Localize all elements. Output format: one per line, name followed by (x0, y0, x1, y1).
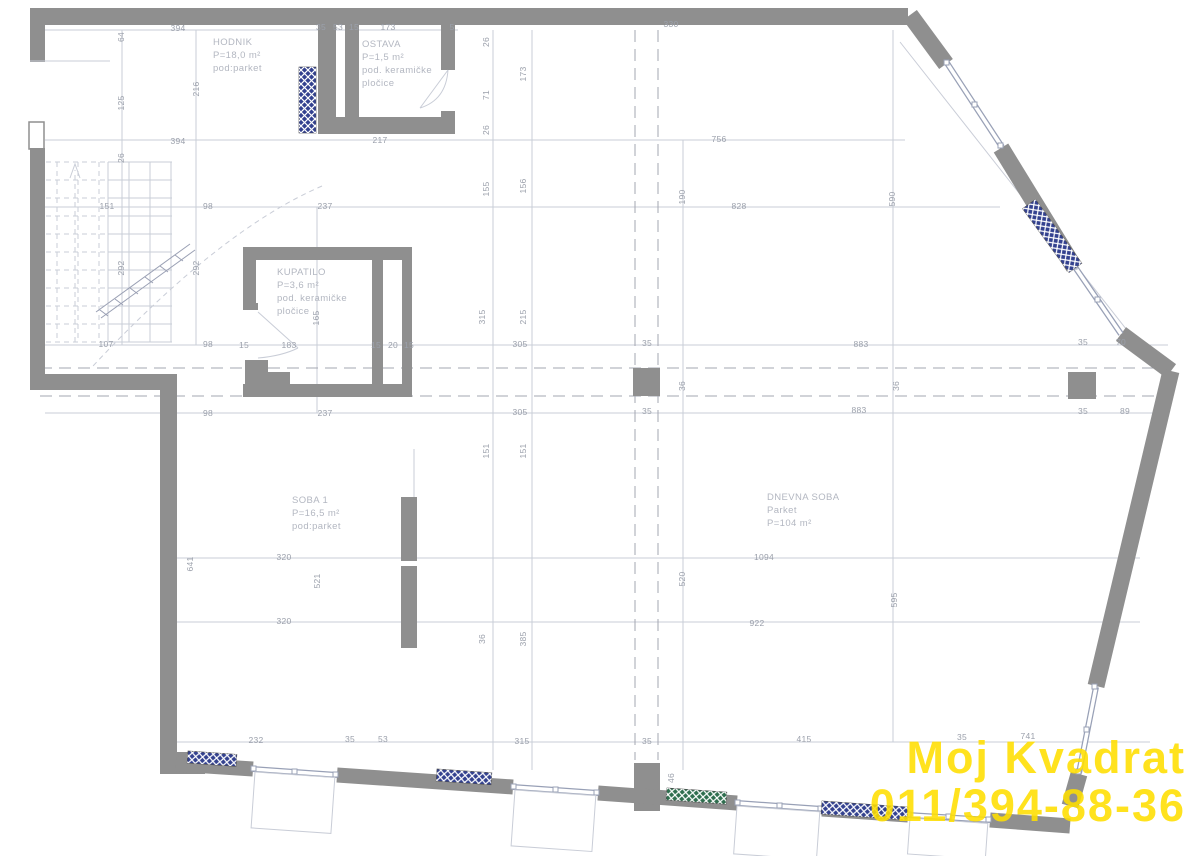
dimension-label: 320 (276, 616, 291, 626)
dimension-label: 35 (1078, 406, 1088, 416)
dimension-label: 415 (796, 734, 811, 744)
dimension-label: 15 (404, 340, 414, 350)
dimension-label: 183 (281, 340, 296, 350)
dimension-label: 883 (851, 405, 866, 415)
dimension-label: 330 (663, 19, 678, 29)
dimension-label: 305 (512, 407, 527, 417)
dimension-label: 922 (749, 618, 764, 628)
top-wall (30, 8, 908, 25)
dimension-label: 216 (191, 81, 201, 96)
dimension-label: 520 (677, 571, 687, 586)
dimension-label: 595 (889, 592, 899, 607)
dimension-label: 89 (1120, 406, 1130, 416)
window-diagonal-2 (1072, 264, 1121, 334)
dimension-label: 15 (239, 340, 249, 350)
center-column (633, 368, 660, 396)
dimension-label: 151 (518, 443, 528, 458)
dimension-label: 173 (518, 66, 528, 81)
dimension-label: 215 (518, 309, 528, 324)
dimension-label: 756 (711, 134, 726, 144)
dimension-label: 26 (481, 125, 491, 135)
watermark-phone: 011/394-88-36 (870, 782, 1186, 830)
dimension-label: 35 (345, 734, 355, 744)
dimension-label: 35 (642, 406, 652, 416)
dimension-label: 237 (317, 408, 332, 418)
dimension-label: 641 (185, 556, 195, 571)
dimension-label: 15 (371, 340, 381, 350)
entry-door-jamb (29, 122, 44, 149)
dimension-label: 305 (512, 339, 527, 349)
dimension-label: 828 (731, 201, 746, 211)
dimension-label: 35 (1078, 337, 1088, 347)
floor-plan: 3943553151735330394217756151982378281079… (0, 0, 1200, 856)
dimension-label: 315 (477, 309, 487, 324)
dimension-label: 173 (380, 22, 395, 32)
soba1-partition-wall (401, 449, 417, 648)
dimension-label: 292 (191, 260, 201, 275)
window-bottom-2 (511, 784, 599, 795)
dimension-label: 217 (372, 135, 387, 145)
hatch-window-diagonal (1023, 199, 1082, 272)
staircase (46, 162, 195, 342)
left-wall-lower (160, 390, 177, 758)
left-wall-mid (30, 148, 45, 376)
window-bottom-1 (251, 766, 338, 777)
left-step-wall (30, 374, 177, 390)
left-wall-upper (30, 8, 45, 62)
dimension-label: 20 (388, 340, 398, 350)
dimension-label: 1094 (754, 552, 774, 562)
dimension-label: 53 (333, 22, 343, 32)
dimension-label: 883 (853, 339, 868, 349)
room-label-ostava: OSTAVA P=1,5 m² pod. keramičke pločice (362, 38, 432, 90)
right-column (1068, 372, 1096, 399)
windows-layer (251, 60, 1121, 822)
dimension-label: 237 (317, 201, 332, 211)
dimension-label: 71 (481, 90, 491, 100)
dimension-label: 26 (481, 37, 491, 47)
dimension-label: 35 (316, 22, 326, 32)
hatched-panels (187, 67, 1082, 820)
room-label-hodnik: HODNIK P=18,0 m² pod:parket (213, 36, 262, 75)
dimension-label: 36 (891, 381, 901, 391)
dimension-label: 156 (518, 178, 528, 193)
dimension-label: 46 (666, 773, 676, 783)
dimension-label: 385 (518, 631, 528, 646)
dimension-label: 107 (98, 339, 113, 349)
dimension-label: 232 (248, 735, 263, 745)
dimension-label: 15 (349, 22, 359, 32)
walls-layer (29, 8, 1171, 826)
dimension-label: 70 (1116, 337, 1126, 347)
dimension-label: 98 (203, 201, 213, 211)
dimension-label: 155 (481, 181, 491, 196)
dimension-label: 394 (170, 23, 185, 33)
dimension-label: 320 (276, 552, 291, 562)
dimension-label: 98 (203, 339, 213, 349)
hatch-window-vertical (299, 67, 316, 133)
dimension-label: 315 (514, 736, 529, 746)
kupatilo-door-arc (258, 312, 298, 358)
dimension-label: 53 (378, 734, 388, 744)
dimension-label: 36 (677, 381, 687, 391)
dimension-label: 98 (203, 408, 213, 418)
dimension-label: 35 (642, 736, 652, 746)
watermark-brand: Moj Kvadrat (906, 734, 1186, 782)
room-label-kupatilo: KUPATILO P=3,6 m² pod. keramičke pločice (277, 266, 347, 318)
dimension-label: 292 (116, 260, 126, 275)
dimension-label: 590 (887, 191, 897, 206)
dimension-label: 394 (170, 136, 185, 146)
dimension-label: 151 (99, 201, 114, 211)
dimension-label: 521 (312, 573, 322, 588)
dimension-label: 5 (449, 22, 454, 32)
floor-plan-drawing (0, 0, 1200, 856)
dimension-label: 151 (481, 443, 491, 458)
room-label-soba-1: SOBA 1 P=16,5 m² pod:parket (292, 494, 341, 533)
dimension-label: 35 (642, 338, 652, 348)
dimension-label: 64 (116, 32, 126, 42)
room-label-dnevna-soba: DNEVNA SOBA Parket P=104 m² (767, 491, 840, 530)
door-swings (93, 70, 448, 366)
dimension-label: 26 (116, 153, 126, 163)
dimension-label: 36 (477, 634, 487, 644)
dimension-label: 190 (677, 189, 687, 204)
dimension-label: 125 (116, 95, 126, 110)
